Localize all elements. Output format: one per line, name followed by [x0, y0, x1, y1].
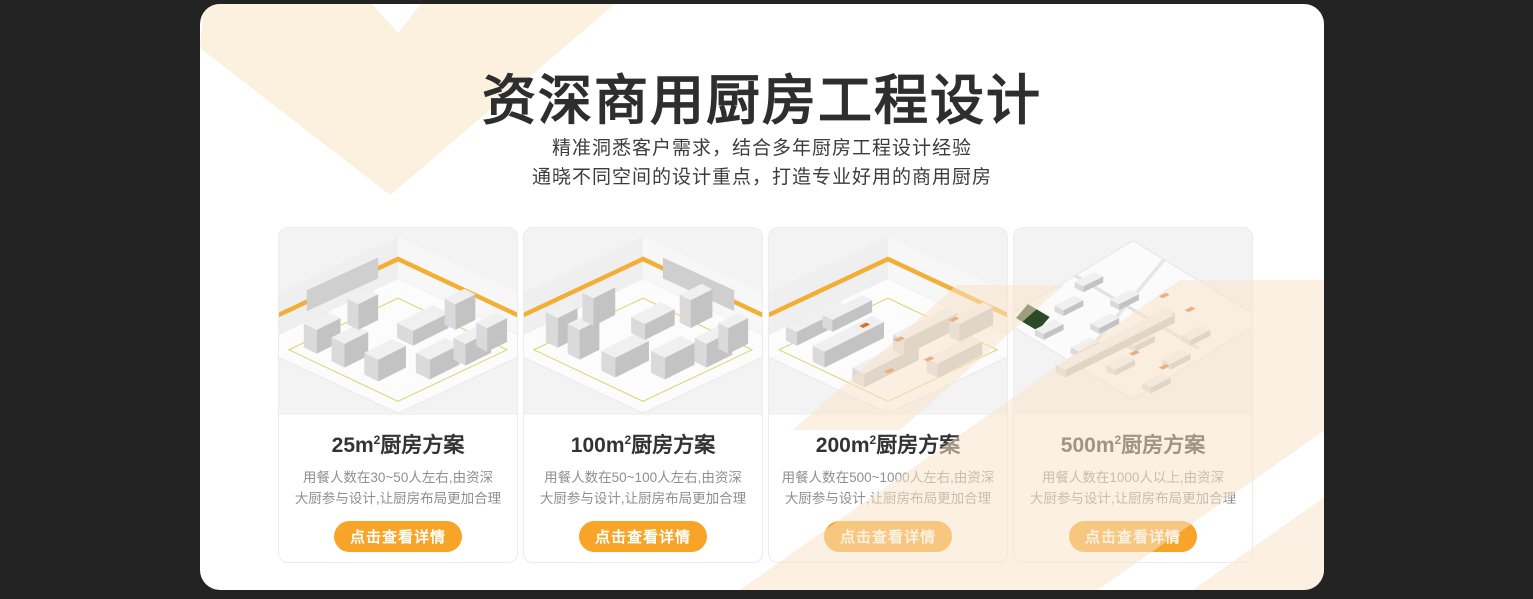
kitchen-render-image — [1014, 228, 1252, 415]
description-line-1: 用餐人数在1000人以上,由资深 — [1014, 467, 1252, 488]
description-line-2: 大厨参与设计,让厨房布局更加合理 — [769, 488, 1007, 509]
plan-card-description: 用餐人数在50~100人左右,由资深 大厨参与设计,让厨房布局更加合理 — [524, 467, 762, 509]
plan-card-title: 25m2厨房方案 — [279, 429, 517, 459]
view-details-button[interactable]: 点击查看详情 — [1069, 521, 1197, 552]
page-title: 资深商用厨房工程设计 — [200, 56, 1324, 135]
kitchen-render-image — [769, 228, 1007, 415]
plan-card-description: 用餐人数在500~1000人左右,由资深 大厨参与设计,让厨房布局更加合理 — [769, 467, 1007, 509]
description-line-1: 用餐人数在30~50人左右,由资深 — [279, 467, 517, 488]
plan-area: 100m — [571, 434, 625, 457]
plan-area: 200m — [816, 434, 870, 457]
view-details-button[interactable]: 点击查看详情 — [824, 521, 952, 552]
plan-title-suffix: 厨房方案 — [631, 434, 715, 457]
plan-title-suffix: 厨房方案 — [876, 434, 960, 457]
plan-area: 500m — [1061, 434, 1115, 457]
plan-card-title: 500m2厨房方案 — [1014, 429, 1252, 459]
view-details-button[interactable]: 点击查看详情 — [334, 521, 462, 552]
plan-area: 25m — [332, 434, 374, 457]
kitchen-isometric-render-icon — [524, 228, 762, 415]
description-line-1: 用餐人数在50~100人左右,由资深 — [524, 467, 762, 488]
description-line-2: 大厨参与设计,让厨房布局更加合理 — [524, 488, 762, 509]
kitchen-isometric-render-icon — [1014, 228, 1252, 415]
plan-card-500sqm: 500m2厨房方案 用餐人数在1000人以上,由资深 大厨参与设计,让厨房布局更… — [1013, 227, 1253, 563]
kitchen-isometric-render-icon — [279, 228, 517, 415]
plan-card-description: 用餐人数在30~50人左右,由资深 大厨参与设计,让厨房布局更加合理 — [279, 467, 517, 509]
page-background: { "colors": { "page_background": "#23232… — [0, 0, 1533, 599]
plan-card-title: 100m2厨房方案 — [524, 429, 762, 459]
plan-card-description: 用餐人数在1000人以上,由资深 大厨参与设计,让厨房布局更加合理 — [1014, 467, 1252, 509]
page-subtitle-line-1: 精准洞悉客户需求，结合多年厨房工程设计经验 — [200, 133, 1324, 160]
page-subtitle-line-2: 通晓不同空间的设计重点，打造专业好用的商用厨房 — [200, 162, 1324, 189]
plan-card-title: 200m2厨房方案 — [769, 429, 1007, 459]
description-line-2: 大厨参与设计,让厨房布局更加合理 — [1014, 488, 1252, 509]
kitchen-render-image — [524, 228, 762, 415]
plan-card-100sqm: 100m2厨房方案 用餐人数在50~100人左右,由资深 大厨参与设计,让厨房布… — [523, 227, 763, 563]
plan-card-200sqm: 200m2厨房方案 用餐人数在500~1000人左右,由资深 大厨参与设计,让厨… — [768, 227, 1008, 563]
description-line-1: 用餐人数在500~1000人左右,由资深 — [769, 467, 1007, 488]
plan-title-suffix: 厨房方案 — [1121, 434, 1205, 457]
plan-title-suffix: 厨房方案 — [380, 434, 464, 457]
kitchen-render-image — [279, 228, 517, 415]
plan-card-25sqm: 25m2厨房方案 用餐人数在30~50人左右,由资深 大厨参与设计,让厨房布局更… — [278, 227, 518, 563]
description-line-2: 大厨参与设计,让厨房布局更加合理 — [279, 488, 517, 509]
content-panel: 资深商用厨房工程设计 精准洞悉客户需求，结合多年厨房工程设计经验 通晓不同空间的… — [200, 4, 1324, 590]
kitchen-isometric-render-icon — [769, 228, 1007, 415]
view-details-button[interactable]: 点击查看详情 — [579, 521, 707, 552]
